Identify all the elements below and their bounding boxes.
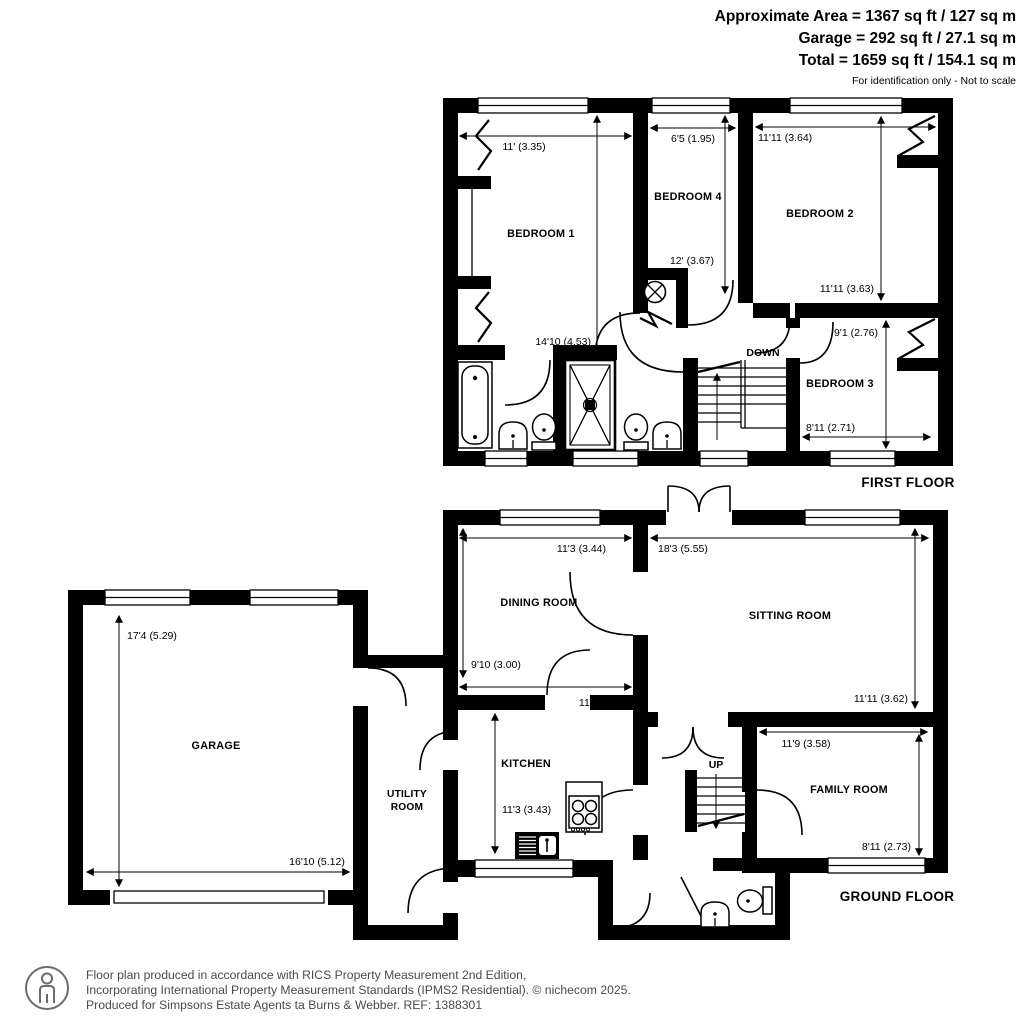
shower-icon [565, 360, 615, 450]
wc-toilet-icon [738, 887, 773, 914]
dim-sitting-depth: 11'11 (3.62) [854, 693, 908, 705]
dim-sitting-width: 18'3 (5.55) [658, 543, 708, 555]
ground-floor-plan: UP [68, 486, 954, 940]
bedroom2-window [790, 98, 902, 113]
garage-window-2 [250, 590, 338, 605]
family-window [828, 858, 925, 873]
bedroom1-label: BEDROOM 1 [507, 228, 575, 240]
dim-family-depth: 8'11 (2.73) [862, 841, 911, 853]
header-area: Approximate Area = 1367 sq ft / 127 sq m… [715, 8, 1017, 87]
dim-kitchen-depth: 11'3 (3.43) [502, 804, 551, 816]
kitchen-label: KITCHEN [501, 758, 551, 770]
utility-room-label-1: UTILITY [387, 789, 427, 800]
sitting-hall-double-door [662, 727, 724, 758]
bedroom1-wardrobe2-icon [476, 292, 491, 342]
footer-area: Floor plan produced in accordance with R… [26, 967, 631, 1012]
basin-icon-1 [499, 422, 527, 449]
garage-utility-door-arc [368, 668, 406, 706]
stairs-up: UP [697, 759, 745, 828]
footer-line1: Floor plan produced in accordance with R… [86, 968, 526, 982]
basin-icon-2 [653, 422, 681, 449]
stairs-up-label: UP [709, 759, 724, 771]
bedroom3-window [830, 451, 895, 466]
first-floor-title: FIRST FLOOR [861, 475, 954, 490]
front-door-opening [666, 510, 732, 525]
first-floor-walls [443, 98, 953, 466]
bedroom2-label: BEDROOM 2 [786, 208, 854, 220]
dim-bedroom2-width: 11'11 (3.64) [758, 132, 812, 144]
dining-room-label: DINING ROOM [500, 597, 577, 609]
family-room-label: FAMILY ROOM [810, 784, 888, 796]
bedroom1-window [478, 98, 588, 113]
closet-bifold-icon [640, 312, 672, 326]
footer-line3: Produced for Simpsons Estate Agents ta B… [86, 998, 482, 1012]
floorplan-page: Approximate Area = 1367 sq ft / 127 sq m… [0, 0, 1024, 1018]
bedroom4-label: BEDROOM 4 [654, 191, 722, 203]
dim-kitchen-width: 11'3 (3.44) [579, 697, 628, 709]
landing-window [700, 451, 748, 466]
hob-icon [566, 782, 602, 832]
dim-bedroom4-width: 6'5 (1.95) [671, 133, 715, 145]
shower-room-window [573, 451, 638, 466]
person-icon [26, 967, 68, 1009]
approx-area-text: Approximate Area = 1367 sq ft / 127 sq m [715, 8, 1016, 25]
dining-window [500, 510, 600, 525]
family-door-arc [757, 790, 802, 835]
toilet-icon-1 [532, 414, 556, 450]
garage-window-1 [105, 590, 190, 605]
dining-sitting-door-arc [570, 572, 633, 635]
garage-area-text: Garage = 292 sq ft / 27.1 sq m [798, 30, 1016, 47]
bathroom-door-arc [505, 360, 550, 405]
dim-dining-depth: 9'10 (3.00) [471, 659, 521, 671]
dim-bedroom4-depth: 12' (3.67) [670, 255, 714, 267]
dim-bedroom3-depth: 9'1 (2.76) [834, 327, 878, 339]
shower-room-door-arc [620, 312, 683, 372]
stairs-down: DOWN [698, 347, 786, 440]
light-point-icon [645, 282, 666, 303]
total-area-text: Total = 1659 sq ft / 154.1 sq m [799, 52, 1016, 69]
dim-bedroom2-depth: 11'11 (3.63) [820, 283, 874, 295]
wc-basin-icon [701, 902, 729, 927]
dim-garage-depth: 17'4 (5.29) [127, 630, 177, 642]
dim-family-width: 11'9 (3.58) [781, 738, 830, 750]
ground-floor-title: GROUND FLOOR [840, 889, 955, 904]
first-floor-plan: DOWN [443, 98, 955, 490]
handrail-line-ground [698, 814, 744, 826]
bedroom3-door-arc [800, 322, 833, 363]
front-double-door [668, 486, 730, 512]
garage-label: GARAGE [192, 740, 241, 752]
footer-line2: Incorporating International Property Mea… [86, 983, 631, 997]
bedroom3-wardrobe-icon [898, 319, 935, 359]
sitting-room-label: SITTING ROOM [749, 610, 831, 622]
bathtub-icon [458, 362, 492, 448]
floorplan-canvas: Approximate Area = 1367 sq ft / 127 sq m… [0, 0, 1024, 1018]
kitchen-sink-icon [515, 832, 559, 859]
bedroom3-label: BEDROOM 3 [806, 378, 874, 390]
garage-door [110, 890, 328, 905]
dim-bedroom1-width: 11' (3.35) [502, 141, 545, 153]
wc-door-leaf [681, 877, 702, 918]
bedroom4-door-arc [688, 280, 733, 325]
sitting-window [805, 510, 900, 525]
porch-rear-door-arc [613, 893, 650, 928]
handrail-line [698, 362, 740, 372]
dim-garage-width: 16'10 (5.12) [289, 856, 345, 868]
dim-bedroom1-depth: 14'10 (4.53) [535, 336, 591, 348]
dim-bedroom3-width: 8'11 (2.71) [806, 422, 855, 434]
bathroom-window [485, 451, 527, 466]
dining-kitchen-door-arc [547, 650, 590, 695]
bedroom1-wardrobe1-icon [476, 120, 491, 170]
bedroom4-window [652, 98, 730, 113]
toilet-icon-2 [624, 414, 648, 450]
bedroom2-wardrobe-icon [898, 116, 935, 156]
utility-room-label-2: ROOM [391, 802, 424, 813]
stairs-down-label: DOWN [746, 347, 779, 359]
disclaimer-text: For identification only - Not to scale [852, 75, 1016, 87]
dim-dining-width: 11'3 (3.44) [557, 543, 606, 555]
kitchen-window [475, 860, 573, 877]
